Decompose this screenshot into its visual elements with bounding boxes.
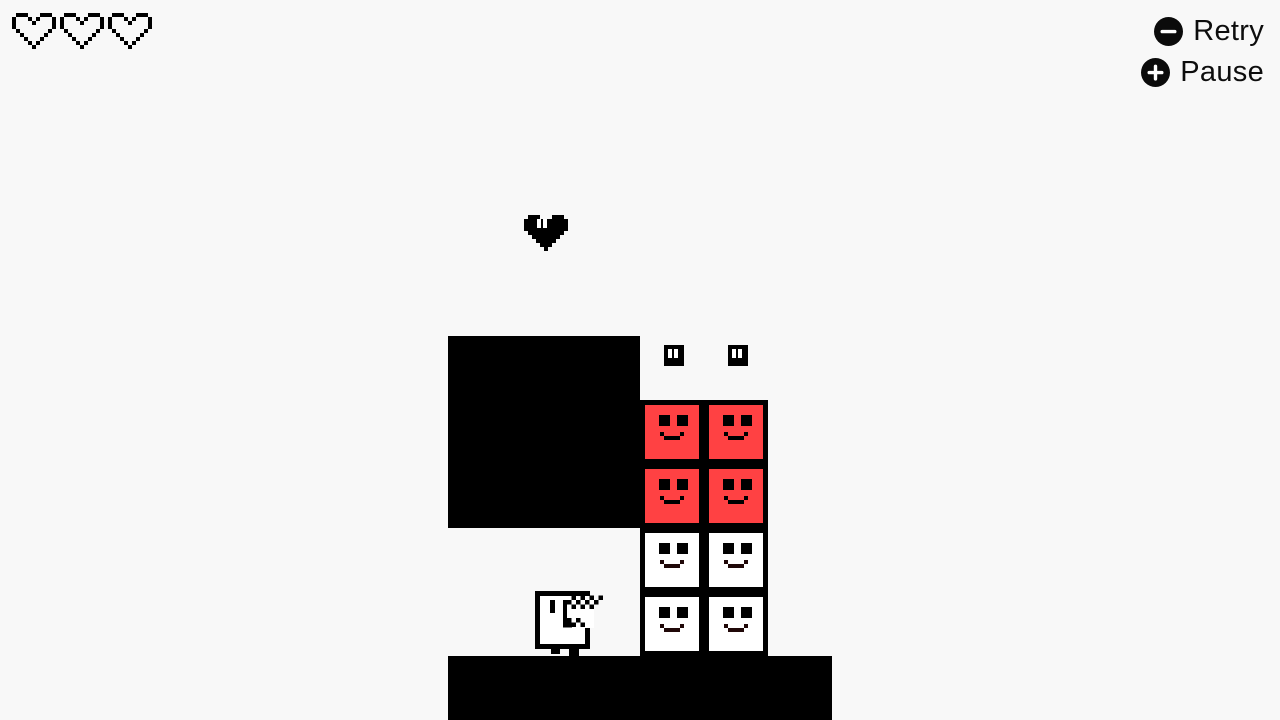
white-smiley-block: [704, 592, 768, 656]
white-smiley-block: [640, 528, 704, 592]
block-eyes-marker: [664, 345, 684, 366]
white-smiley-block: [704, 528, 768, 592]
red-smiley-block: [640, 400, 704, 464]
white-smiley-block: [640, 592, 704, 656]
player-character: [533, 588, 605, 664]
heart-pickup: [524, 215, 568, 251]
game-board: [0, 0, 1280, 720]
red-smiley-block: [704, 400, 768, 464]
red-smiley-block: [640, 464, 704, 528]
wall-block: [448, 336, 640, 528]
game-stage: Retry Pause: [0, 0, 1280, 720]
red-smiley-block: [704, 464, 768, 528]
ground-platform: [448, 656, 832, 720]
block-eyes-marker: [728, 345, 748, 366]
